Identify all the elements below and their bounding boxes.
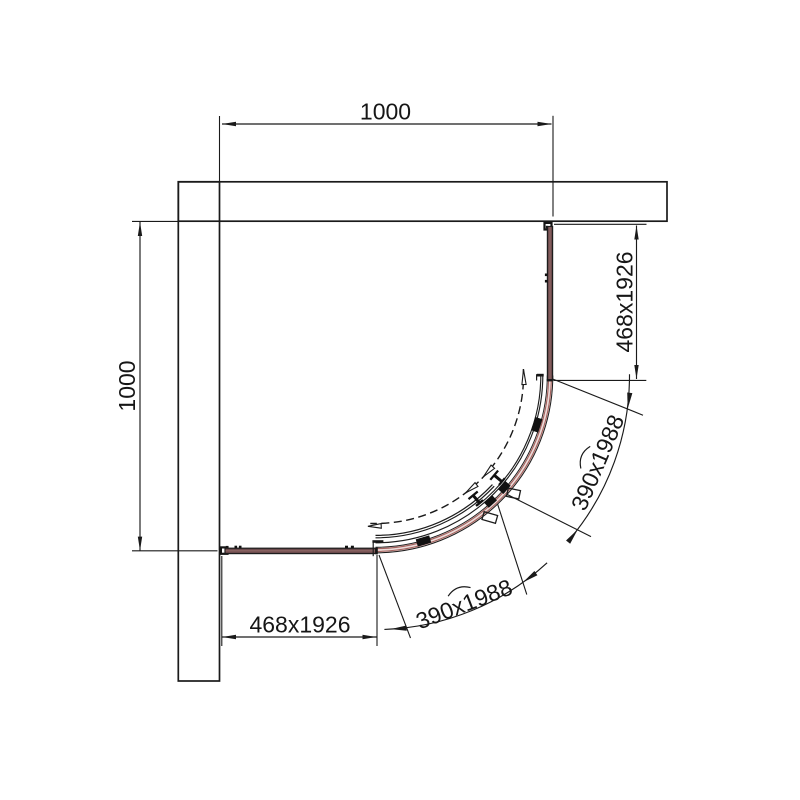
svg-text:468x1926: 468x1926 — [249, 612, 350, 638]
svg-text:1000: 1000 — [114, 360, 140, 411]
svg-text:1000: 1000 — [360, 99, 411, 125]
svg-text:468x1926: 468x1926 — [612, 251, 638, 352]
